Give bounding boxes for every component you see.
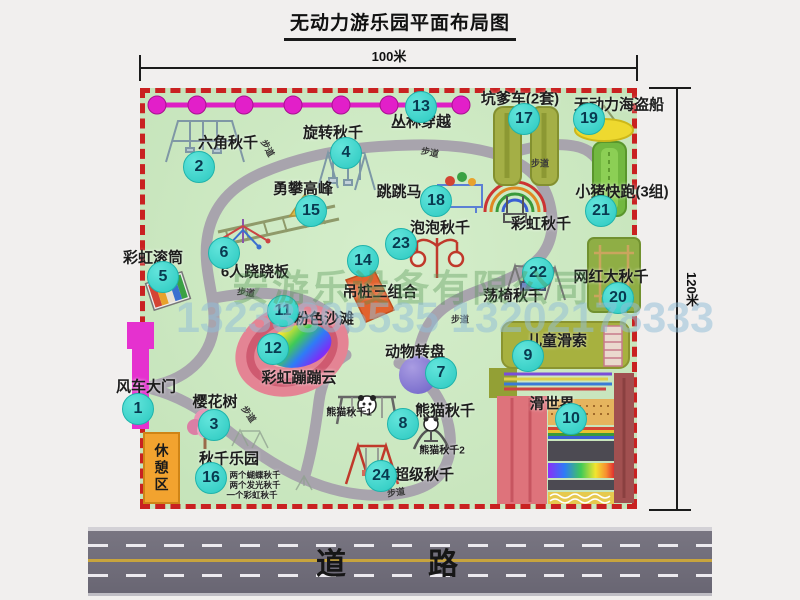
label-bubble-swing: 泡泡秋千 (410, 217, 470, 238)
label-hexagon-swing: 六角秋千 (198, 132, 258, 153)
swing-paradise-note-3: 一个彩虹秋千 (226, 489, 277, 501)
right-dimension-line (676, 88, 678, 511)
label-panda-swing: 熊猫秋千 (415, 400, 475, 421)
top-dimension-tick-left (139, 55, 141, 81)
right-dimension-tick-bottom (649, 509, 691, 511)
badge-5: 5 (147, 261, 179, 293)
badge-16: 16 (195, 462, 227, 494)
windmill-gate-icon (127, 322, 154, 349)
badge-24: 24 (365, 460, 397, 492)
walkway-label-4: 步道 (236, 284, 256, 299)
badge-19: 19 (573, 103, 605, 135)
label-panda-swing-2: 熊猫秋千2 (419, 442, 465, 457)
page-title: 无动力游乐园平面布局图 (284, 8, 516, 41)
rest-area-box: 休憩区 (143, 432, 180, 504)
badge-17: 17 (508, 103, 540, 135)
label-hanging-post-combo: 吊桩三组合 (342, 281, 417, 302)
label-rainbow-swing: 彩虹秋千 (511, 213, 571, 234)
badge-21: 21 (585, 195, 617, 227)
right-dimension-tick-top (649, 87, 691, 89)
label-rainbow-cloud: 彩虹蹦蹦云 (261, 367, 336, 388)
badge-6: 6 (208, 237, 240, 269)
walkway-label-5: 步道 (451, 313, 469, 326)
badge-1: 1 (122, 393, 154, 425)
width-dimension-label: 100米 (372, 46, 407, 65)
top-dimension-line (140, 67, 637, 69)
top-dimension-tick-right (636, 55, 638, 81)
badge-15: 15 (295, 195, 327, 227)
badge-4: 4 (330, 137, 362, 169)
badge-22: 22 (522, 257, 554, 289)
badge-10: 10 (555, 403, 587, 435)
label-jumping-horse: 跳跳马 (376, 181, 421, 202)
road-label: 道 路 (316, 539, 484, 583)
label-super-swing: 超级秋千 (394, 464, 454, 485)
badge-14: 14 (347, 245, 379, 277)
label-pink-beach: 粉色沙滩 (294, 308, 354, 329)
badge-12: 12 (257, 333, 289, 365)
badge-11: 11 (267, 295, 299, 327)
label-windmill-gate: 风车大门 (116, 376, 176, 397)
badge-20: 20 (602, 282, 634, 314)
badge-23: 23 (385, 228, 417, 260)
rest-area-label: 休憩区 (152, 443, 172, 494)
label-climbing-peak: 勇攀高峰 (273, 178, 333, 199)
badge-8: 8 (387, 408, 419, 440)
badge-7: 7 (425, 357, 457, 389)
badge-9: 9 (512, 340, 544, 372)
road: 道 路 (88, 527, 712, 596)
badge-18: 18 (420, 185, 452, 217)
playground-plan-page: { "title": "无动力游乐园平面布局图", "dimensions": … (0, 0, 800, 600)
badge-13: 13 (405, 91, 437, 123)
badge-2: 2 (183, 151, 215, 183)
label-panda-swing-1: 熊猫秋千1 (326, 404, 372, 419)
walkway-label-3: 步道 (531, 157, 549, 170)
height-dimension-label: 120米 (682, 272, 701, 307)
badge-3: 3 (198, 409, 230, 441)
